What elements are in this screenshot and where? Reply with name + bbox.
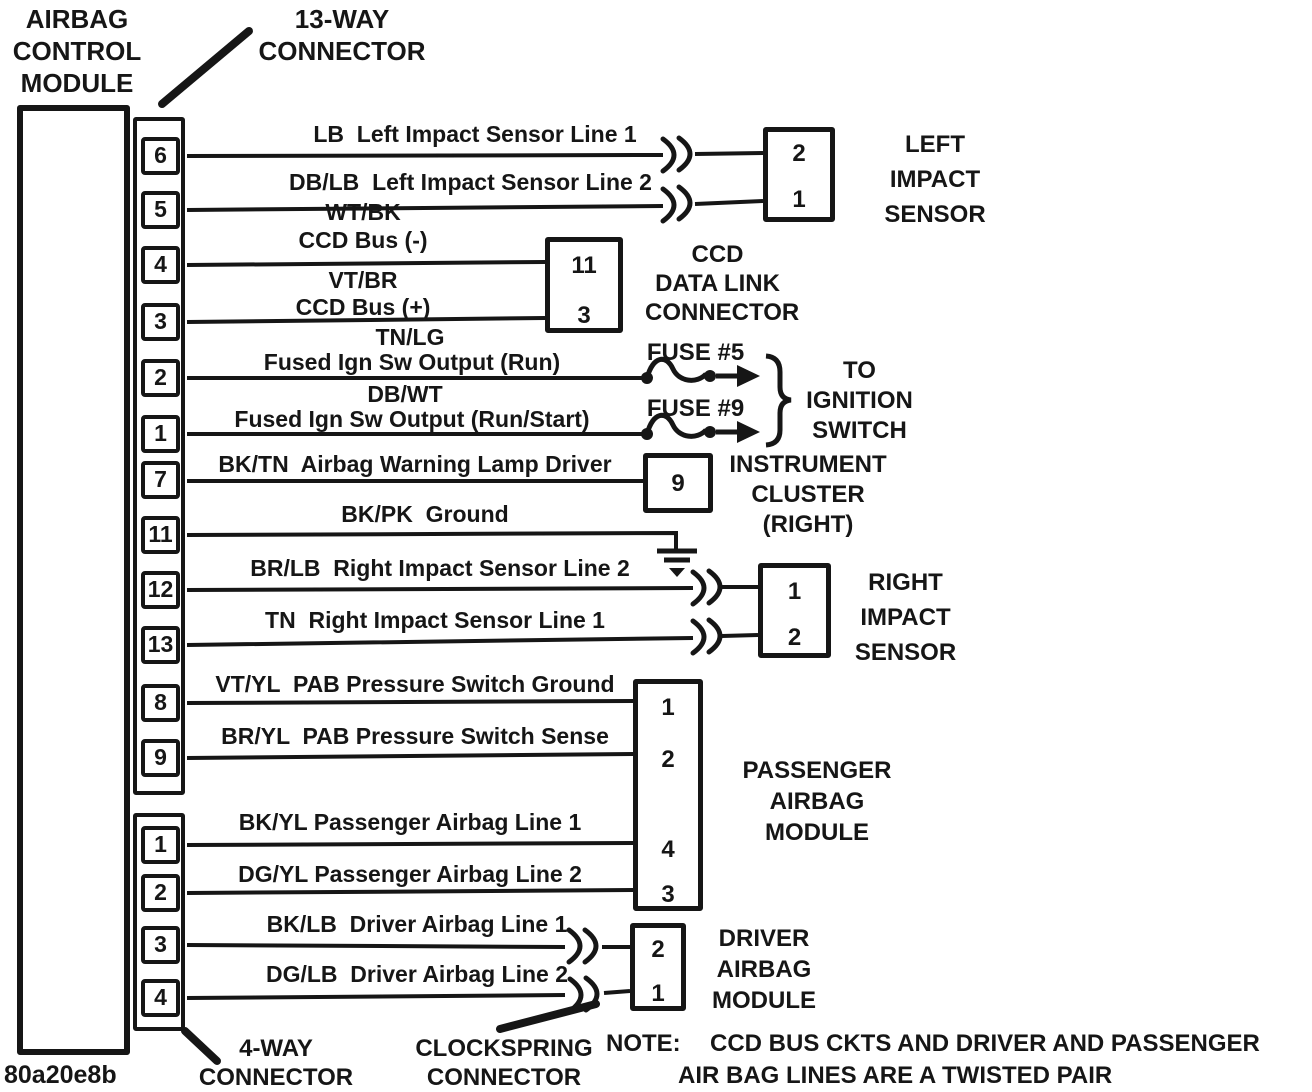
wire-label: BK/TN Airbag Warning Lamp Driver <box>205 451 625 477</box>
wire-label: DB/LB Left Impact Sensor Line 2 <box>268 169 673 195</box>
pin-box: 5 <box>141 191 180 229</box>
wire-color-code: WT/BK <box>263 199 463 225</box>
driver-airbag-label: DRIVER AIRBAG MODULE <box>700 923 828 1016</box>
right-impact-sensor-label: RIGHT IMPACT SENSOR <box>843 565 968 670</box>
clockspring-label: CLOCKSPRING CONNECTOR <box>415 1034 593 1092</box>
component-pin: 4 <box>638 836 698 864</box>
fuse9-label: FUSE #9 <box>633 396 758 422</box>
brace-icon <box>766 356 791 445</box>
break-chevron-icon <box>693 621 704 653</box>
note-prefix: NOTE: <box>606 1031 706 1057</box>
doc-code: 80a20e8b <box>4 1062 144 1088</box>
wire-pab-switch-ground <box>187 701 633 703</box>
pointer-13way <box>162 31 249 104</box>
wire-pab-switch-sense <box>187 754 633 758</box>
pin-box: 2 <box>141 874 180 912</box>
pin-box: 3 <box>141 926 180 964</box>
pin-box: 8 <box>141 684 180 722</box>
passenger-airbag-label: PASSENGER AIRBAG MODULE <box>733 755 901 848</box>
wire-left-impact-line1 <box>187 153 763 156</box>
wire-right-impact-line2 <box>187 587 758 590</box>
wire-label: BK/YL Passenger Airbag Line 1 <box>210 809 610 835</box>
wire-label: DG/LB Driver Airbag Line 2 <box>212 961 622 987</box>
wire-dab-line1 <box>187 945 630 947</box>
wire-label: LB Left Impact Sensor Line 1 <box>275 121 675 147</box>
connector4-label: 4-WAY CONNECTOR <box>186 1034 366 1092</box>
component-pin: 1 <box>768 186 830 214</box>
component-pin: 1 <box>638 694 698 722</box>
wire-label: CCD Bus (-) <box>263 227 463 253</box>
component-pin: 2 <box>635 936 681 964</box>
wire-label: DG/YL Passenger Airbag Line 2 <box>210 861 610 887</box>
pin-box: 7 <box>141 461 180 499</box>
wiring-diagram: AIRBAG CONTROL MODULE 13-WAY CONNECTOR 6… <box>0 0 1312 1092</box>
left-impact-sensor-box: 2 1 <box>763 127 835 222</box>
component-pin: 1 <box>763 578 826 606</box>
passenger-airbag-box: 1 2 4 3 <box>633 679 703 911</box>
instrument-cluster-label: INSTRUMENT CLUSTER (RIGHT) <box>722 450 894 540</box>
component-pin: 9 <box>648 470 708 498</box>
acm-box <box>17 105 130 1055</box>
ccd-connector-label: CCD DATA LINK CONNECTOR <box>645 240 790 327</box>
wire-color-code: DB/WT <box>305 381 505 407</box>
wire-ground <box>187 533 676 550</box>
fuse5-label: FUSE #5 <box>633 340 758 366</box>
pointer-clockspring <box>500 1004 596 1029</box>
wire-dab-line2 <box>187 991 630 998</box>
wire-label: BR/LB Right Impact Sensor Line 2 <box>235 555 645 581</box>
component-pin: 3 <box>638 881 698 909</box>
wire-color-code: VT/BR <box>263 267 463 293</box>
acm-label: AIRBAG CONTROL MODULE <box>6 3 148 99</box>
wire-label: TN Right Impact Sensor Line 1 <box>230 607 640 633</box>
wire-ccd-bus-minus <box>187 262 545 265</box>
break-chevron-icon <box>709 620 720 652</box>
wire-label: VT/YL PAB Pressure Switch Ground <box>205 671 625 697</box>
pin-box: 9 <box>141 739 180 777</box>
wire-pab-line1 <box>187 843 633 845</box>
right-impact-sensor-box: 1 2 <box>758 563 831 658</box>
ccd-connector-box: 11 3 <box>545 237 623 333</box>
wire-label: BK/LB Driver Airbag Line 1 <box>212 911 622 937</box>
component-pin: 1 <box>635 980 681 1008</box>
wire-label: BR/YL PAB Pressure Switch Sense <box>205 723 625 749</box>
component-pin: 11 <box>550 252 618 280</box>
driver-airbag-box: 2 1 <box>630 923 686 1011</box>
break-chevron-icon <box>679 187 690 219</box>
wire-right-impact-line1 <box>187 635 758 645</box>
wire-label: Fused Ign Sw Output (Run) <box>212 349 612 375</box>
wire-label: Fused Ign Sw Output (Run/Start) <box>212 406 612 432</box>
note-line2: AIR BAG LINES ARE A TWISTED PAIR <box>678 1063 1288 1089</box>
pin-box: 3 <box>141 303 180 341</box>
connector13-label: 13-WAY CONNECTOR <box>248 3 436 67</box>
pin-box: 1 <box>141 826 180 864</box>
note-line1: CCD BUS CKTS AND DRIVER AND PASSENGER <box>710 1031 1312 1057</box>
pin-box: 4 <box>141 979 180 1017</box>
left-impact-sensor-label: LEFT IMPACT SENSOR <box>865 127 1005 232</box>
break-chevron-icon <box>693 572 704 604</box>
wire-pab-line2 <box>187 890 633 893</box>
arrowhead-icon <box>737 421 760 443</box>
ignition-switch-label: TO IGNITION SWITCH <box>802 356 917 446</box>
component-pin: 3 <box>550 302 618 330</box>
pin-box: 1 <box>141 415 180 453</box>
pin-box: 6 <box>141 137 180 175</box>
instrument-cluster-box: 9 <box>643 453 713 513</box>
pin-box: 4 <box>141 246 180 284</box>
pin-box: 13 <box>141 626 180 664</box>
pin-box: 12 <box>141 571 180 609</box>
wire-color-code: TN/LG <box>310 324 510 350</box>
break-chevron-icon <box>709 571 720 603</box>
arrowhead-icon <box>737 365 760 387</box>
pin-box: 2 <box>141 359 180 397</box>
wire-label: CCD Bus (+) <box>263 294 463 320</box>
break-chevron-icon <box>679 138 690 170</box>
component-pin: 2 <box>768 140 830 168</box>
wire-label: BK/PK Ground <box>225 501 625 527</box>
component-pin: 2 <box>763 624 826 652</box>
pin-box: 11 <box>141 516 180 554</box>
component-pin: 2 <box>638 746 698 774</box>
